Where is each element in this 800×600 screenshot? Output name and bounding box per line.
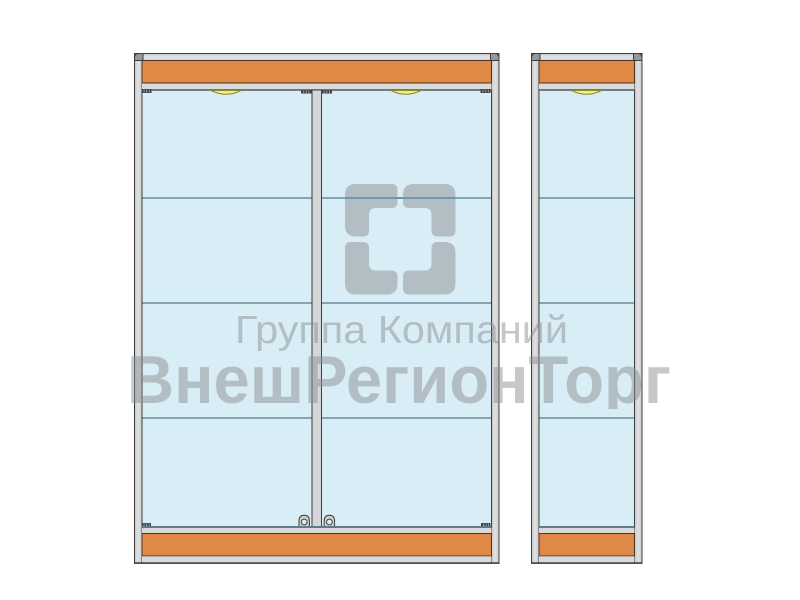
svg-text:ВнешРегионТорг: ВнешРегионТорг: [127, 342, 671, 418]
